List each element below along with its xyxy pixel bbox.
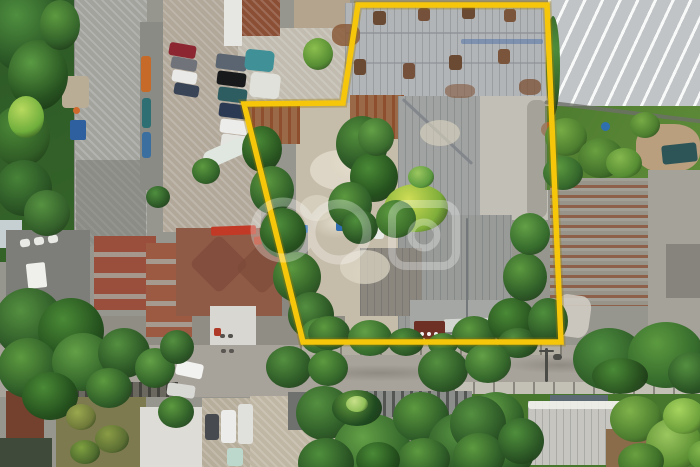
- tree: [70, 440, 100, 464]
- tree: [503, 253, 547, 301]
- tree: [260, 208, 306, 258]
- tree: [40, 0, 80, 50]
- tree: [303, 38, 333, 70]
- tree: [408, 166, 434, 188]
- tree: [358, 118, 394, 156]
- tree: [510, 213, 550, 255]
- tree: [663, 398, 700, 434]
- tree: [24, 190, 70, 236]
- tree: [376, 200, 416, 238]
- tree: [250, 166, 294, 214]
- tree: [388, 328, 424, 356]
- tree: [342, 210, 378, 244]
- tree: [192, 158, 220, 184]
- tree: [528, 298, 568, 344]
- tree: [266, 346, 312, 388]
- tree: [543, 156, 583, 190]
- tree: [8, 96, 44, 138]
- tree: [418, 348, 468, 392]
- photo-trees: [0, 0, 700, 467]
- tree: [95, 425, 129, 453]
- tree: [242, 126, 282, 172]
- tree: [465, 343, 511, 383]
- tree: [308, 316, 350, 350]
- tree: [346, 396, 368, 412]
- tree: [498, 418, 544, 464]
- tree: [158, 396, 194, 428]
- tree: [86, 368, 132, 408]
- tree: [606, 148, 642, 178]
- tree: [630, 112, 660, 138]
- tree: [66, 404, 96, 430]
- tree: [546, 16, 560, 116]
- tree: [348, 320, 392, 356]
- tree: [592, 358, 648, 394]
- aerial-photo: [0, 0, 700, 467]
- tree: [308, 350, 348, 386]
- tree: [160, 330, 194, 364]
- tree: [146, 186, 170, 208]
